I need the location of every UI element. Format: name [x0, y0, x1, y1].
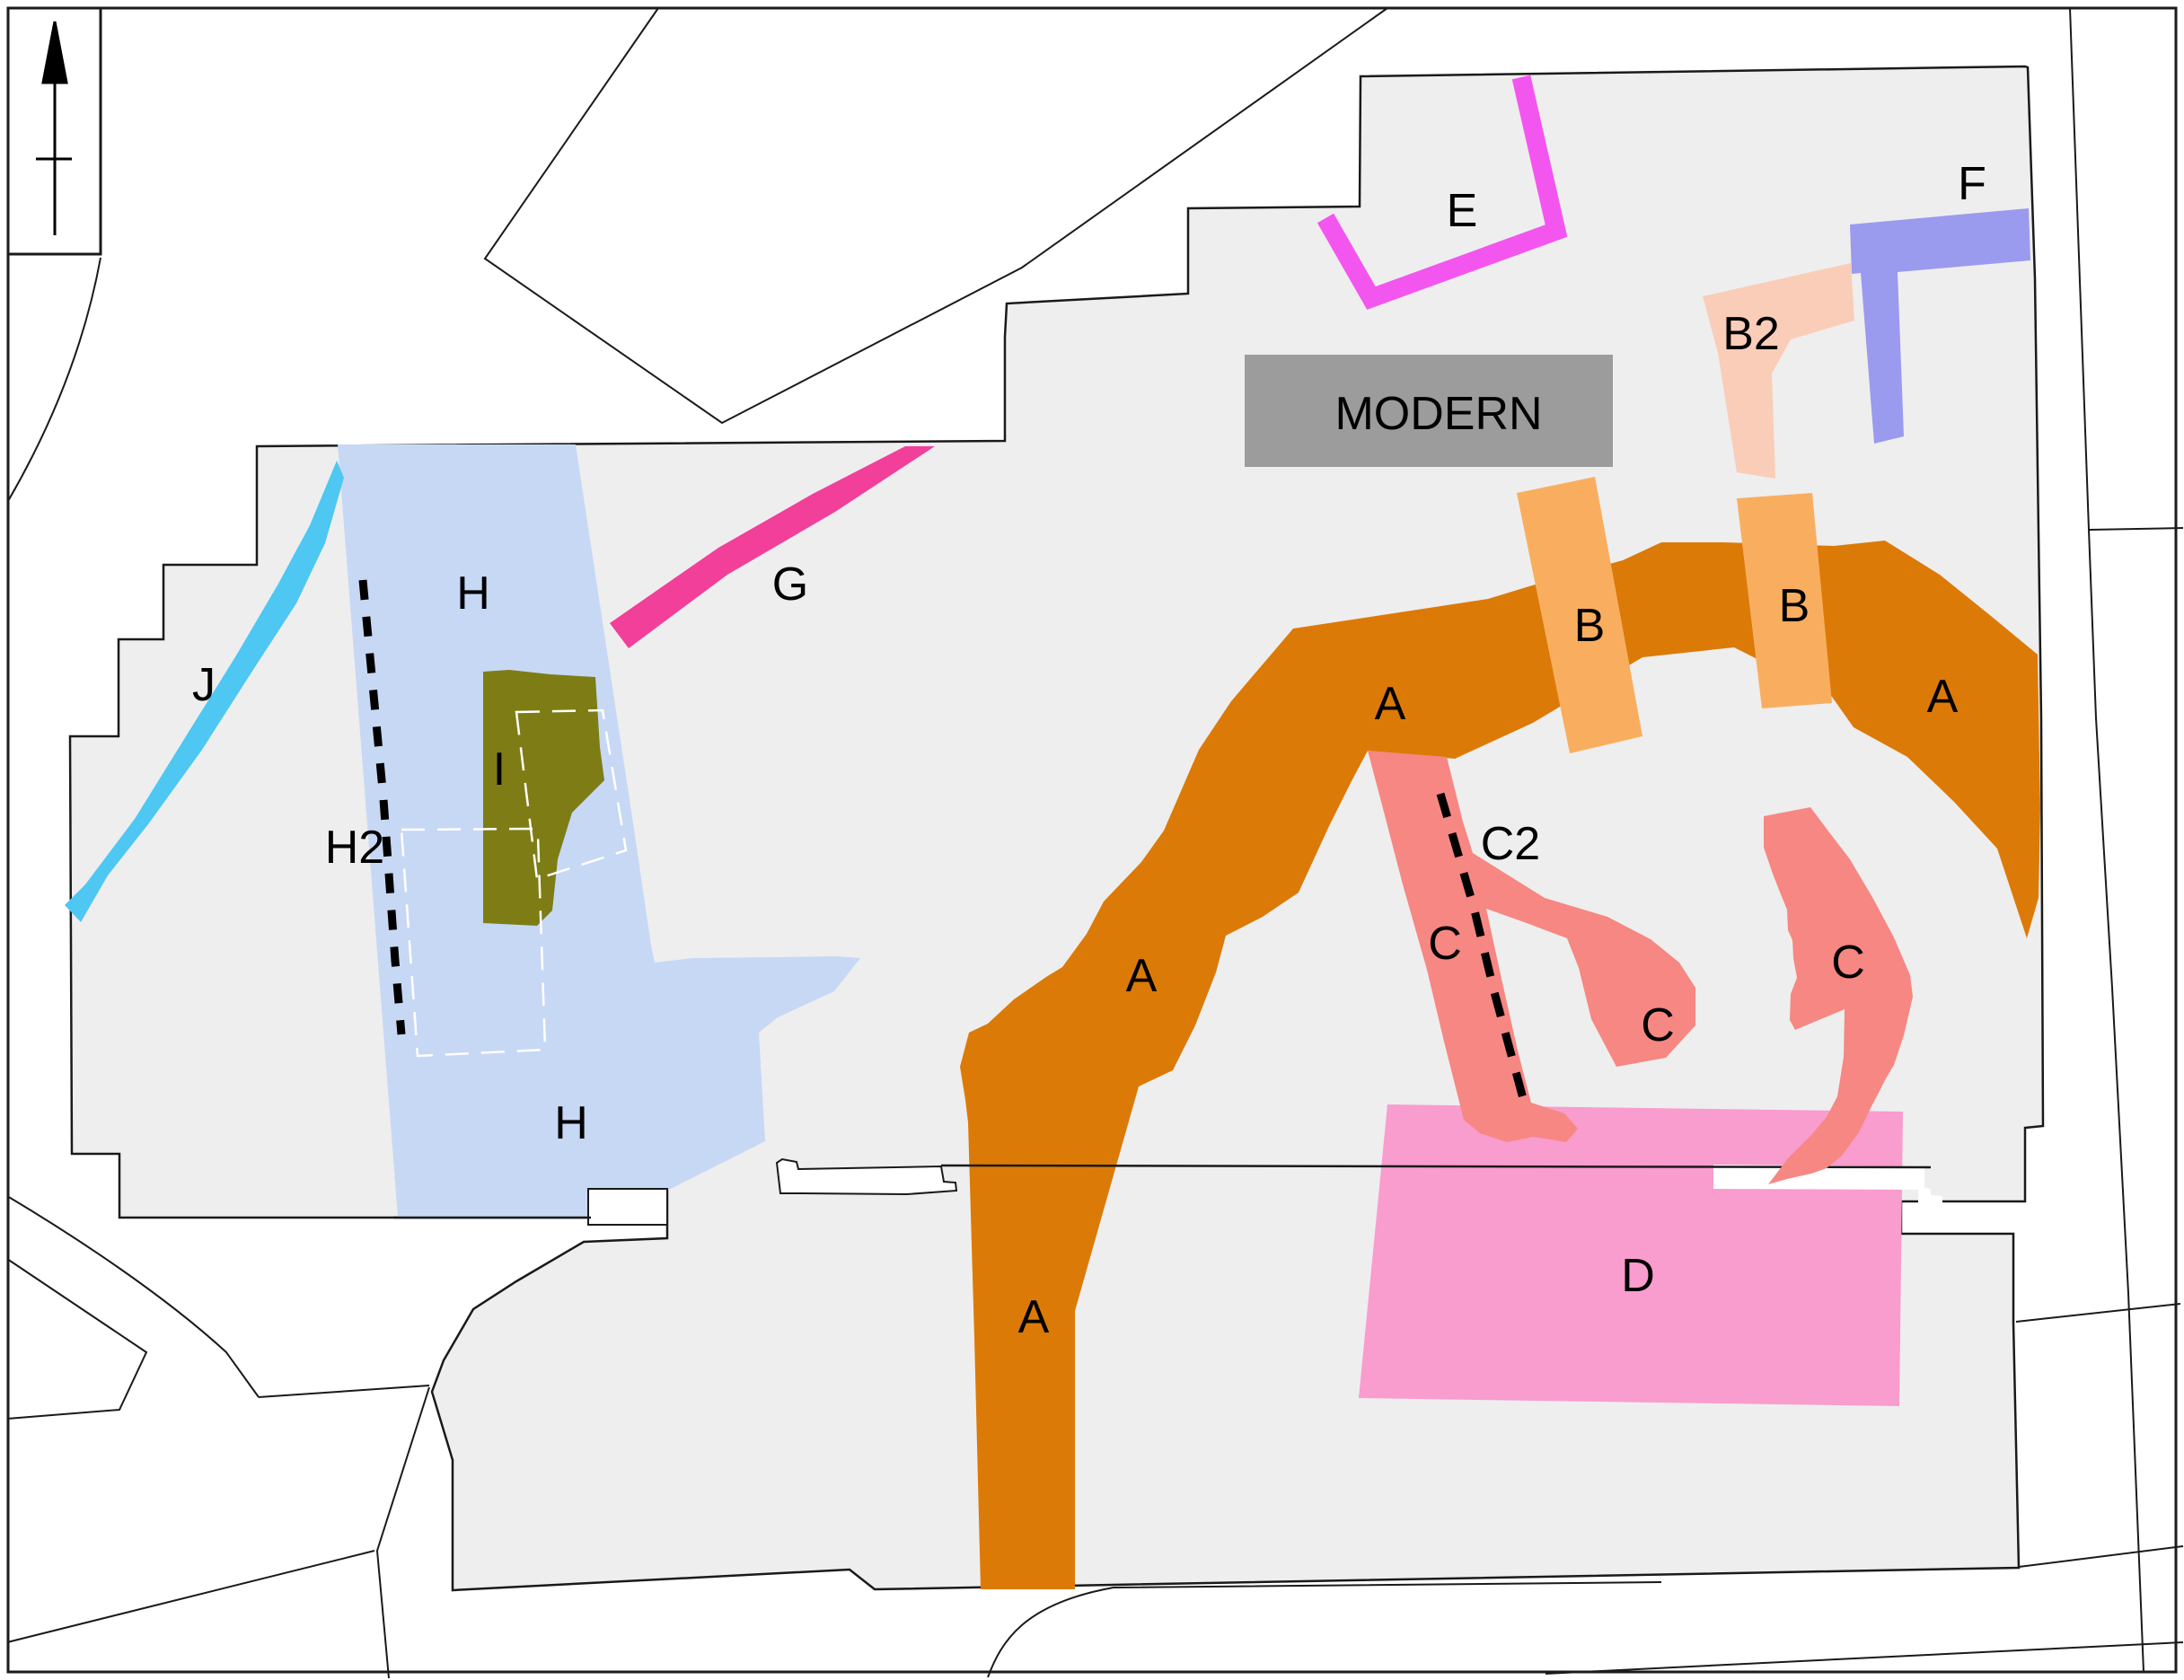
svg-text:MODERN: MODERN: [1334, 388, 1542, 440]
svg-text:C: C: [1831, 937, 1865, 989]
svg-text:F: F: [1958, 158, 1986, 210]
svg-text:A: A: [1126, 950, 1158, 1002]
svg-text:A: A: [1927, 671, 1959, 723]
svg-text:G: G: [772, 559, 808, 611]
svg-text:H2: H2: [325, 822, 384, 874]
svg-text:A: A: [1375, 678, 1406, 730]
svg-text:B2: B2: [1722, 308, 1780, 360]
svg-text:B: B: [1574, 600, 1606, 652]
svg-text:B: B: [1779, 580, 1810, 632]
svg-text:C2: C2: [1481, 818, 1540, 870]
svg-text:E: E: [1447, 185, 1478, 237]
svg-text:I: I: [493, 743, 506, 796]
svg-text:C: C: [1428, 918, 1462, 970]
svg-text:C: C: [1641, 999, 1675, 1051]
svg-text:J: J: [192, 659, 216, 711]
svg-text:H: H: [456, 567, 490, 620]
svg-text:A: A: [1018, 1291, 1050, 1343]
svg-text:H: H: [554, 1097, 588, 1149]
svg-text:D: D: [1621, 1250, 1655, 1302]
